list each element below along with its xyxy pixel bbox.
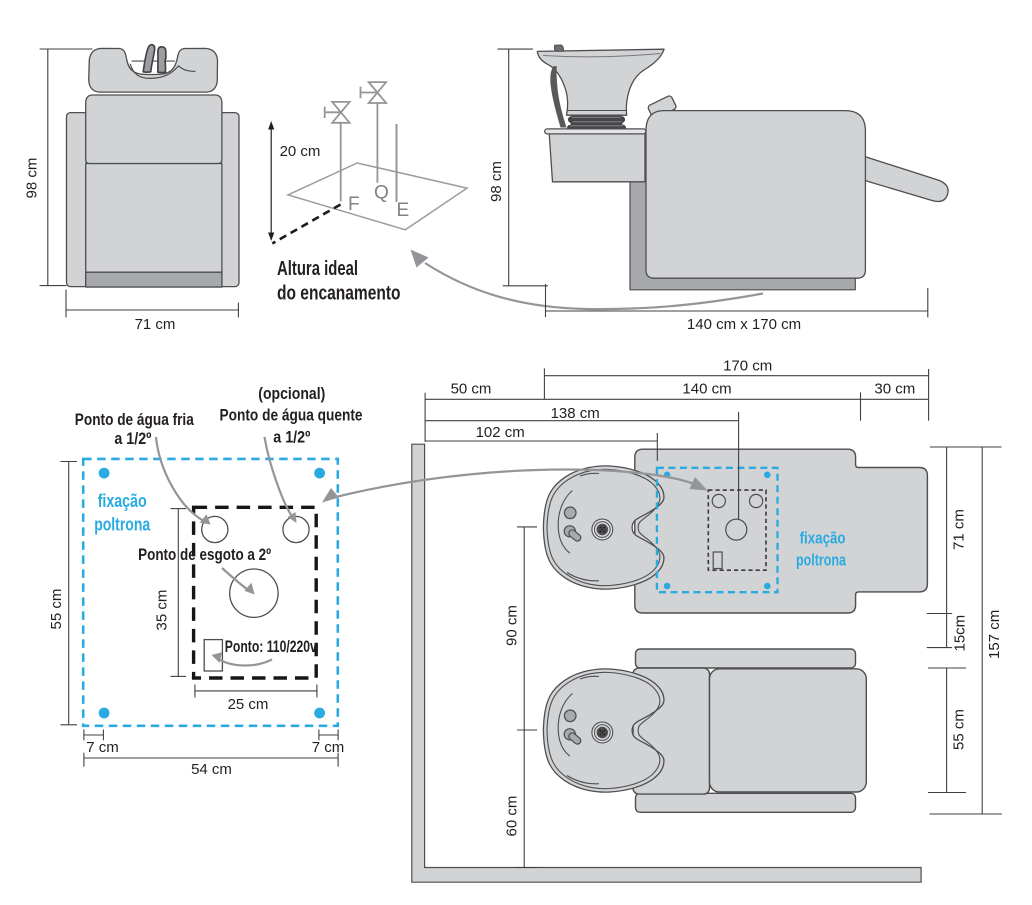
svg-text:15cm: 15cm	[952, 615, 969, 652]
svg-text:poltrona: poltrona	[94, 515, 151, 535]
svg-text:Ponto de água fria: Ponto de água fria	[75, 411, 195, 429]
svg-text:98 cm: 98 cm	[488, 161, 505, 202]
svg-text:E: E	[397, 200, 410, 221]
svg-text:71 cm: 71 cm	[951, 509, 968, 550]
svg-text:do encanamento: do encanamento	[277, 282, 401, 305]
svg-text:25 cm: 25 cm	[228, 696, 269, 713]
svg-text:54 cm: 54 cm	[191, 761, 232, 778]
svg-text:F: F	[348, 194, 360, 215]
svg-text:poltrona: poltrona	[796, 551, 846, 570]
svg-text:55 cm: 55 cm	[48, 589, 65, 630]
svg-text:Ponto: 110/220v: Ponto: 110/220v	[225, 638, 318, 656]
svg-text:Ponto de água quente: Ponto de água quente	[220, 407, 363, 425]
svg-text:102 cm: 102 cm	[476, 424, 525, 441]
svg-text:60 cm: 60 cm	[504, 796, 521, 837]
svg-text:138 cm: 138 cm	[551, 405, 600, 422]
svg-text:55 cm: 55 cm	[951, 709, 968, 750]
svg-text:Q: Q	[374, 183, 389, 204]
svg-text:Altura ideal: Altura ideal	[277, 257, 358, 280]
svg-text:a 1/2º: a 1/2º	[273, 429, 310, 447]
svg-text:170 cm: 170 cm	[723, 358, 772, 375]
svg-text:7 cm: 7 cm	[312, 739, 345, 756]
svg-text:71 cm: 71 cm	[135, 316, 176, 333]
svg-text:90 cm: 90 cm	[504, 605, 521, 646]
svg-text:98 cm: 98 cm	[24, 158, 41, 199]
svg-text:fixação: fixação	[98, 491, 147, 511]
svg-text:35 cm: 35 cm	[154, 590, 171, 631]
svg-text:50 cm: 50 cm	[451, 381, 492, 398]
svg-text:fixação: fixação	[800, 529, 846, 548]
svg-text:Ponto de esgoto a 2º: Ponto de esgoto a 2º	[138, 546, 271, 564]
svg-text:157 cm: 157 cm	[986, 610, 1003, 659]
svg-text:20 cm: 20 cm	[280, 143, 321, 160]
svg-text:140 cm: 140 cm	[682, 381, 731, 398]
svg-text:(opcional): (opcional)	[258, 385, 325, 403]
svg-text:30 cm: 30 cm	[874, 381, 915, 398]
svg-text:7 cm: 7 cm	[86, 739, 119, 756]
svg-text:a 1/2º: a 1/2º	[114, 430, 151, 448]
svg-text:140 cm x 170 cm: 140 cm x 170 cm	[687, 316, 801, 333]
